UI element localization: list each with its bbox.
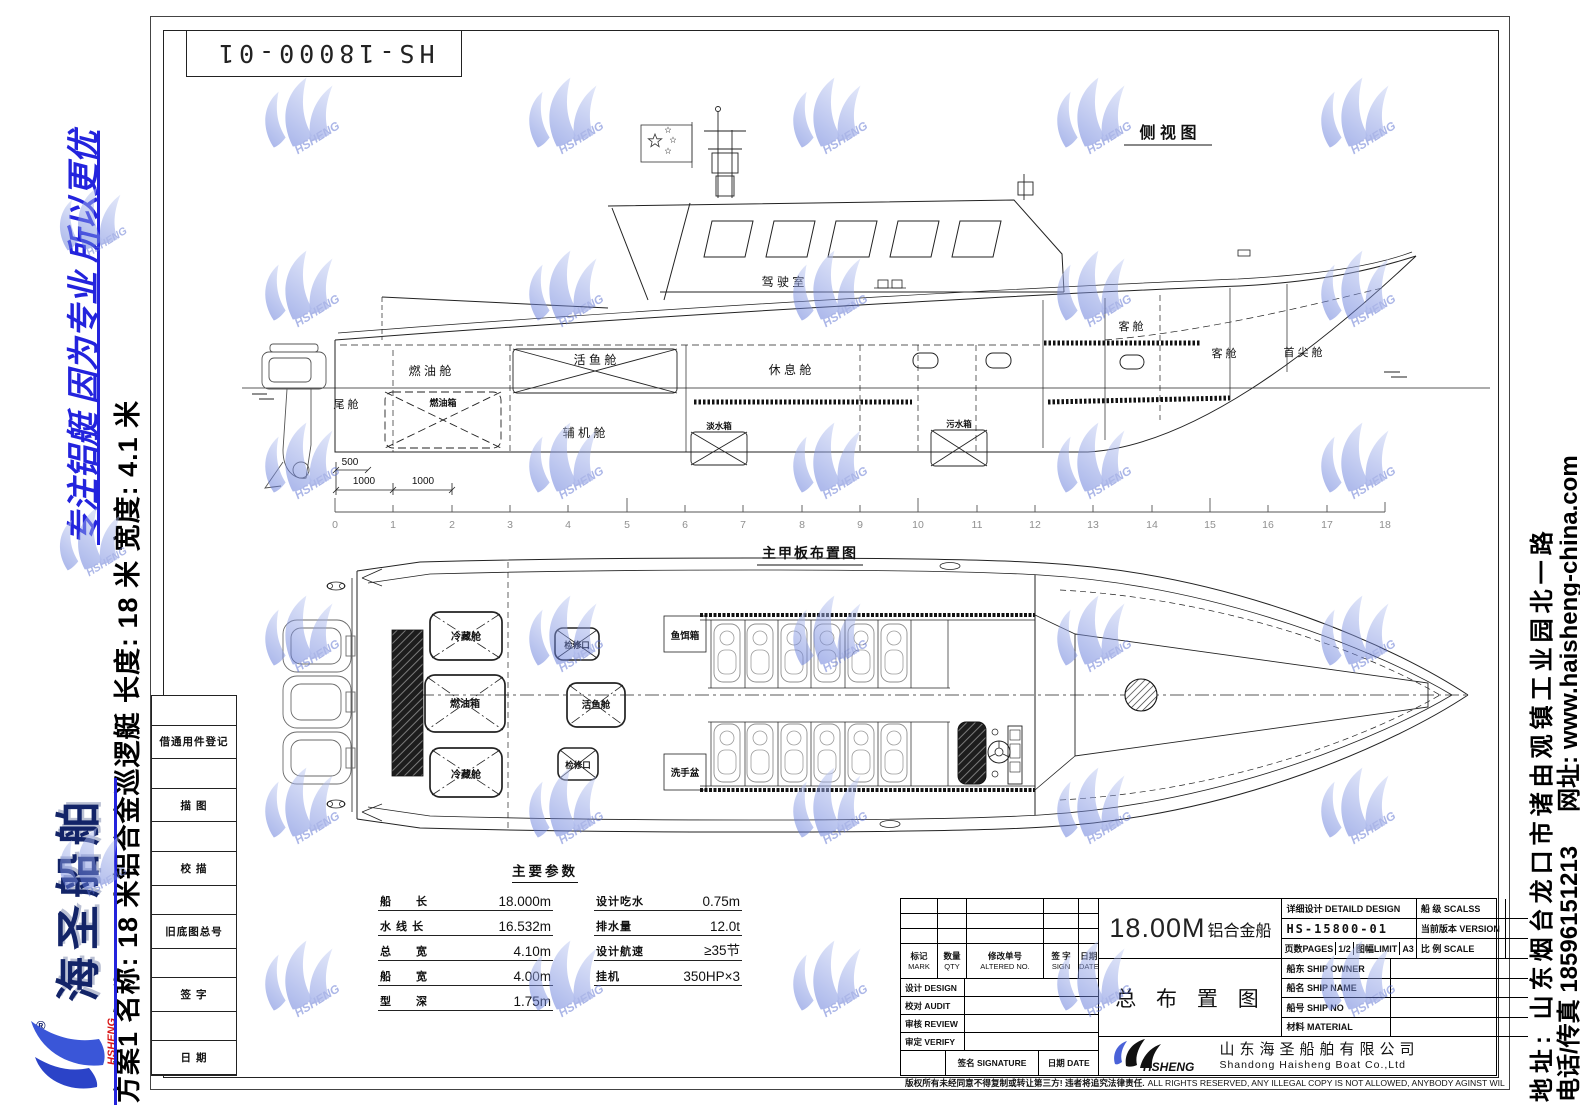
vertical-phone-website: 电话/传真 18596151213网址: www.haisheng-china.… (1549, 455, 1580, 1102)
param-value: 1.75m (513, 994, 551, 1009)
ship-owner-row: 船东 SHIP OWNER (1282, 959, 1527, 979)
detail-design-row: 详细设计 DETAILD DESIGN 船 级 SCALSS (1282, 899, 1527, 919)
revision-empty-row (901, 914, 1098, 929)
product-title: 18.00M铝合金船 (1099, 899, 1282, 958)
margin-empty-cell (152, 886, 236, 916)
margin-row-label: 描 图 (152, 789, 236, 823)
product-size: 18.00M (1109, 913, 1205, 944)
param-label: 水 线 长 (380, 918, 424, 934)
param-value: 16.532m (498, 919, 551, 934)
website-text: 网址: www.haisheng-china.com (1556, 455, 1580, 811)
altered-label: 修改单号 (967, 951, 1043, 962)
copyright-en: ALL RIGHTS RESERVED, ANY ILLEGAL COPY IS… (1148, 1078, 1505, 1088)
verify-row: 审定 VERIFY (901, 1033, 1098, 1051)
logo-brand-text: HSHENG (106, 1017, 114, 1065)
param-value: ≥35节 (704, 939, 740, 959)
phone-text: 电话/传真 18596151213 (1556, 846, 1580, 1102)
logo-wave-2 (31, 1021, 105, 1066)
param-row: 水 线 长16.532m (378, 911, 553, 936)
product-type: 铝合金船 (1207, 917, 1271, 941)
margin-row-label: 校 描 (152, 852, 236, 886)
title-block-right: 18.00M铝合金船 详细设计 DETAILD DESIGN 船 级 SCALS… (1099, 899, 1527, 1075)
scale-label: 比 例 SCALE (1417, 939, 1506, 958)
param-row: 设计吃水0.75m (594, 886, 742, 911)
company-logo-brand: HSHENG (1143, 1060, 1194, 1074)
margin-row-label: 签 字 (152, 978, 236, 1012)
ship-name-row: 船名 SHIP NAME (1282, 979, 1527, 999)
drawing-no-row: HS-15800-01 当前版本 VERSION (1282, 919, 1527, 939)
margin-row-label: 旧底图总号 (152, 915, 236, 949)
sign-label: 签 字 (1044, 951, 1078, 962)
signature-date-label: 日期 DATE (1039, 1051, 1098, 1075)
drawing-title: 总 布 置 图 (1099, 959, 1282, 1036)
sheet-number: HS-18000-01 (214, 39, 435, 68)
pages-value: 1/2 (1336, 944, 1353, 954)
revision-table: 标记MARK 数量QTY 修改单号ALTERED NO. 签 字SIGN 日期D… (901, 899, 1099, 1075)
drawing-number: HS-15800-01 (1282, 919, 1416, 938)
margin-registration-block: 借通用件登记 描 图 校 描 旧底图总号 签 字 日 期 (151, 695, 237, 1076)
blue-divider-rule (114, 778, 117, 1105)
param-row: 排水量12.0t (594, 911, 742, 936)
version-label: 当前版本 VERSION (1417, 919, 1506, 938)
margin-empty-cell (152, 949, 236, 979)
audit-row: 校对 AUDIT (901, 997, 1098, 1015)
revision-empty-row (901, 899, 1098, 914)
param-row: 挂机350HP×3 (594, 961, 742, 986)
company-logo-icon: HSHENG (1107, 1038, 1211, 1074)
limit-value: A3 (1400, 944, 1416, 954)
copyright-cn: 版权所有未经同意不得复制或转让第三方! 违者将追究法律责任. (905, 1077, 1145, 1089)
param-value: 4.10m (513, 944, 551, 959)
company-row: HSHENG 山东海圣船舶有限公司 Shandong Haisheng Boat… (1099, 1037, 1527, 1075)
revision-header-row: 标记MARK 数量QTY 修改单号ALTERED NO. 签 字SIGN 日期D… (901, 944, 1098, 979)
design-row: 设计 DESIGN (901, 979, 1098, 997)
param-label: 设计航速 (596, 943, 644, 959)
margin-empty-cell (152, 696, 236, 726)
param-row: 设计航速≥35节 (594, 936, 742, 961)
param-row: 总 宽4.10m (378, 936, 553, 961)
mark-label: 标记 (901, 951, 937, 962)
margin-row-label: 借通用件登记 (152, 726, 236, 760)
param-value: 4.00m (513, 969, 551, 984)
param-label: 船 长 (380, 893, 428, 909)
param-row: 船 长18.000m (378, 886, 553, 911)
param-value: 0.75m (702, 894, 740, 909)
title-block: 标记MARK 数量QTY 修改单号ALTERED NO. 签 字SIGN 日期D… (900, 898, 1497, 1076)
signature-label: 签名 SIGNATURE (946, 1051, 1039, 1075)
parameters-table-left: 船 长18.000m 水 线 长16.532m 总 宽4.10m 船 宽4.00… (378, 886, 553, 1011)
margin-row-label: 日 期 (152, 1041, 236, 1075)
vertical-plan-info: 方案1 名称: 18 米铝合金巡逻艇 长度: 18 米 宽度: 4.1 米 (106, 400, 145, 1103)
param-value: 12.0t (710, 919, 740, 934)
qty-label: 数量 (938, 951, 966, 962)
copyright-line: 版权所有未经同意不得复制或转让第三方! 违者将追究法律责任. ALL RIGHT… (905, 1077, 1505, 1089)
parameters-title: 主要参数 (512, 860, 578, 883)
param-label: 总 宽 (380, 943, 428, 959)
param-label: 排水量 (596, 918, 632, 934)
param-row: 船 宽4.00m (378, 961, 553, 986)
param-label: 型 深 (380, 993, 428, 1009)
parameters-table-right: 设计吃水0.75m 排水量12.0t 设计航速≥35节 挂机350HP×3 (594, 886, 742, 986)
pages-row: 页数PAGES 1/2 图幅LIMIT A3 比 例 SCALE (1282, 939, 1527, 958)
review-row: 审核 REVIEW (901, 1015, 1098, 1033)
margin-empty-cell (152, 1012, 236, 1042)
hsheng-brand-logo: HSHENG (28, 1008, 114, 1104)
margin-empty-cell (152, 759, 236, 789)
revision-empty-row (901, 929, 1098, 944)
limit-label: 图幅LIMIT (1354, 942, 1400, 955)
param-label: 船 宽 (380, 968, 428, 984)
param-value: 18.000m (498, 894, 551, 909)
company-logo-text: 海圣船舶 (42, 794, 107, 1002)
date-label: 日期 (1079, 951, 1098, 962)
pages-label: 页数PAGES (1282, 942, 1335, 955)
ship-no-row: 船号 SHIP NO (1282, 998, 1527, 1018)
company-name-en: Shandong Haisheng Boat Co.,Ltd (1219, 1059, 1419, 1072)
param-label: 挂机 (596, 968, 620, 984)
material-row: 材料 MATERIAL (1282, 1018, 1527, 1037)
vertical-slogan: 专注铝艇 因为专业 所以更优 (57, 131, 105, 545)
class-label: 船 级 SCALSS (1417, 899, 1506, 918)
param-value: 350HP×3 (683, 969, 740, 984)
signature-row: 签名 SIGNATURE 日期 DATE (901, 1051, 1098, 1075)
margin-empty-cell (152, 822, 236, 852)
param-row: 型 深1.75m (378, 986, 553, 1011)
sheet-number-box: HS-18000-01 (186, 30, 462, 77)
company-name-cn: 山东海圣船舶有限公司 (1219, 1041, 1419, 1059)
param-label: 设计吃水 (596, 893, 644, 909)
